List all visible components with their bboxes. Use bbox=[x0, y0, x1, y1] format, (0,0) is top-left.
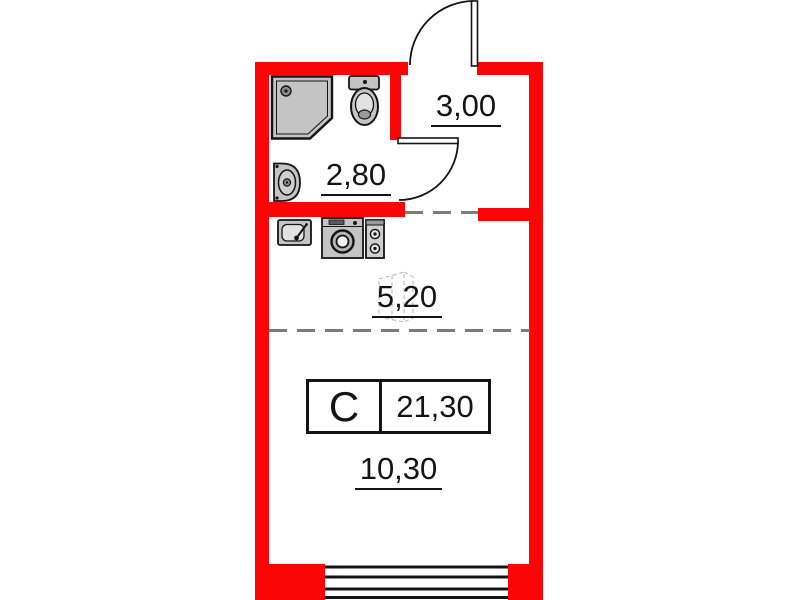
toilet-icon bbox=[349, 76, 379, 125]
hallway-area-label: 3,00 bbox=[422, 90, 510, 127]
wall-bathroom-right bbox=[390, 62, 401, 140]
kitchen-area-value: 5,20 bbox=[372, 281, 442, 318]
washbasin-icon bbox=[274, 164, 300, 202]
entrance-door-arc bbox=[410, 1, 474, 65]
living-room-area-value: 10,30 bbox=[355, 453, 443, 490]
window-opening bbox=[325, 564, 508, 600]
floor-plan: 3,00 2,80 5,20 10,30 С 21,30 bbox=[0, 0, 800, 600]
living-room-area-label: 10,30 bbox=[351, 453, 446, 490]
bathroom-door bbox=[398, 138, 458, 200]
bathroom-door-leaf bbox=[398, 138, 458, 144]
unit-label-box: С 21,30 bbox=[306, 379, 491, 434]
zone-boundary-hall-kitchen bbox=[405, 211, 478, 214]
wall-top-left bbox=[255, 62, 408, 75]
entrance-door bbox=[410, 1, 478, 66]
wall-zone-stub bbox=[478, 208, 530, 221]
wall-right bbox=[529, 62, 543, 600]
kitchen-sink-icon bbox=[278, 220, 311, 245]
wall-left bbox=[255, 62, 269, 600]
kitchen-area-label: 5,20 bbox=[363, 281, 451, 318]
washing-machine-icon bbox=[322, 218, 363, 258]
bathroom-door-arc bbox=[399, 141, 458, 200]
entrance-door-leaf bbox=[472, 1, 478, 66]
bathroom-area-label: 2,80 bbox=[312, 159, 400, 196]
zone-boundary-kitchen-room bbox=[269, 329, 530, 332]
stove-icon bbox=[366, 220, 384, 258]
unit-total-area: 21,30 bbox=[382, 382, 488, 431]
wall-bathroom-bottom bbox=[255, 202, 405, 217]
hallway-area-value: 3,00 bbox=[431, 90, 501, 127]
unit-type-letter: С bbox=[309, 382, 382, 431]
bathroom-area-value: 2,80 bbox=[321, 159, 391, 196]
shower-icon bbox=[272, 77, 332, 139]
